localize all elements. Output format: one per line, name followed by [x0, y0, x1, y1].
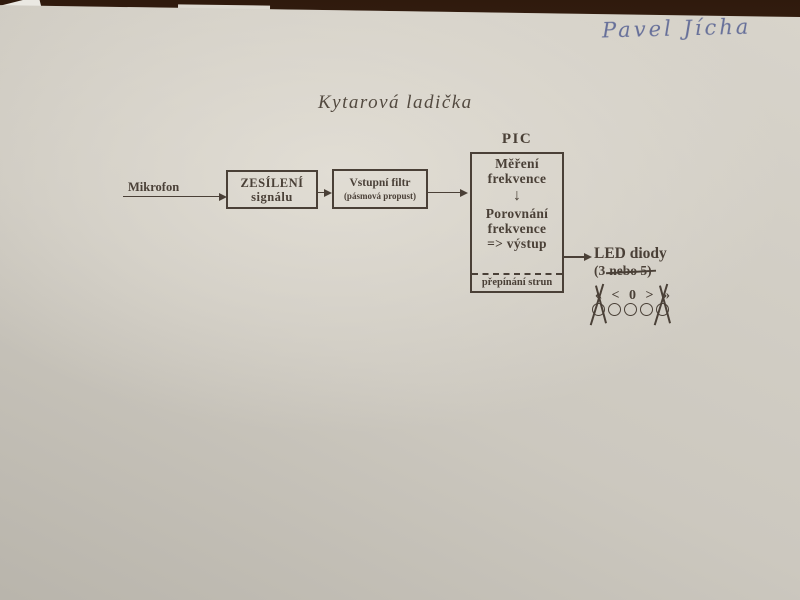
pic-step1-line2: frekvence	[488, 171, 547, 186]
led-direction-symbol: >	[641, 288, 658, 303]
led-direction-symbol: <	[607, 288, 624, 303]
led-circles-row	[590, 303, 700, 321]
arrow-line	[123, 196, 220, 198]
arrow-right-icon	[460, 189, 468, 197]
led-circle	[640, 303, 653, 316]
led-output-block: LED diody (3nebo 5) «<0>»	[590, 245, 700, 321]
pic-step2-line1: Porovnání	[486, 206, 548, 221]
pic-footer: přepínání strun	[482, 275, 552, 291]
led-symbols-row: «<0>»	[590, 286, 700, 301]
led-circle	[608, 303, 621, 316]
led-direction-symbol: 0	[624, 288, 641, 303]
led-count-struck-text: nebo 5	[609, 263, 647, 278]
led-circle	[624, 303, 637, 316]
arrow-down-icon: ↓	[513, 186, 521, 206]
led-count-prefix: (3	[594, 263, 605, 278]
filter-box: Vstupní filtr (pásmová propust)	[332, 169, 428, 209]
pic-step1-line1: Měření	[495, 156, 539, 171]
filter-line2: (pásmová propust)	[344, 190, 416, 202]
led-circle-crossed-out	[592, 303, 605, 316]
arrow-line	[428, 192, 461, 194]
pic-box: Měření frekvence ↓ Porovnání frekvence =…	[470, 152, 564, 293]
photo-of-paper-diagram: Pavel Jícha Kytarová ladička Mikrofon ZE…	[0, 0, 800, 600]
diagram-layer: Pavel Jícha Kytarová ladička Mikrofon ZE…	[0, 0, 800, 600]
filter-line1: Vstupní filtr	[349, 177, 410, 190]
led-title: LED diody	[594, 245, 700, 262]
amplifier-line1: ZESÍLENÍ	[240, 176, 303, 190]
arrow-right-icon	[324, 189, 332, 197]
microphone-label: Mikrofon	[128, 180, 179, 195]
handwritten-author-name: Pavel Jícha	[602, 14, 793, 43]
arrow-line	[564, 256, 585, 258]
amplifier-line2: signálu	[251, 190, 293, 204]
pic-label: PIC	[470, 131, 564, 148]
led-count-note: (3nebo 5)	[594, 263, 700, 278]
pic-step2-line2: frekvence	[488, 221, 547, 236]
led-circle-crossed-out	[656, 303, 669, 316]
pic-step2-line3: => výstup	[487, 236, 547, 251]
diagram-title: Kytarová ladička	[318, 92, 473, 114]
amplifier-box: ZESÍLENÍ signálu	[226, 170, 318, 209]
